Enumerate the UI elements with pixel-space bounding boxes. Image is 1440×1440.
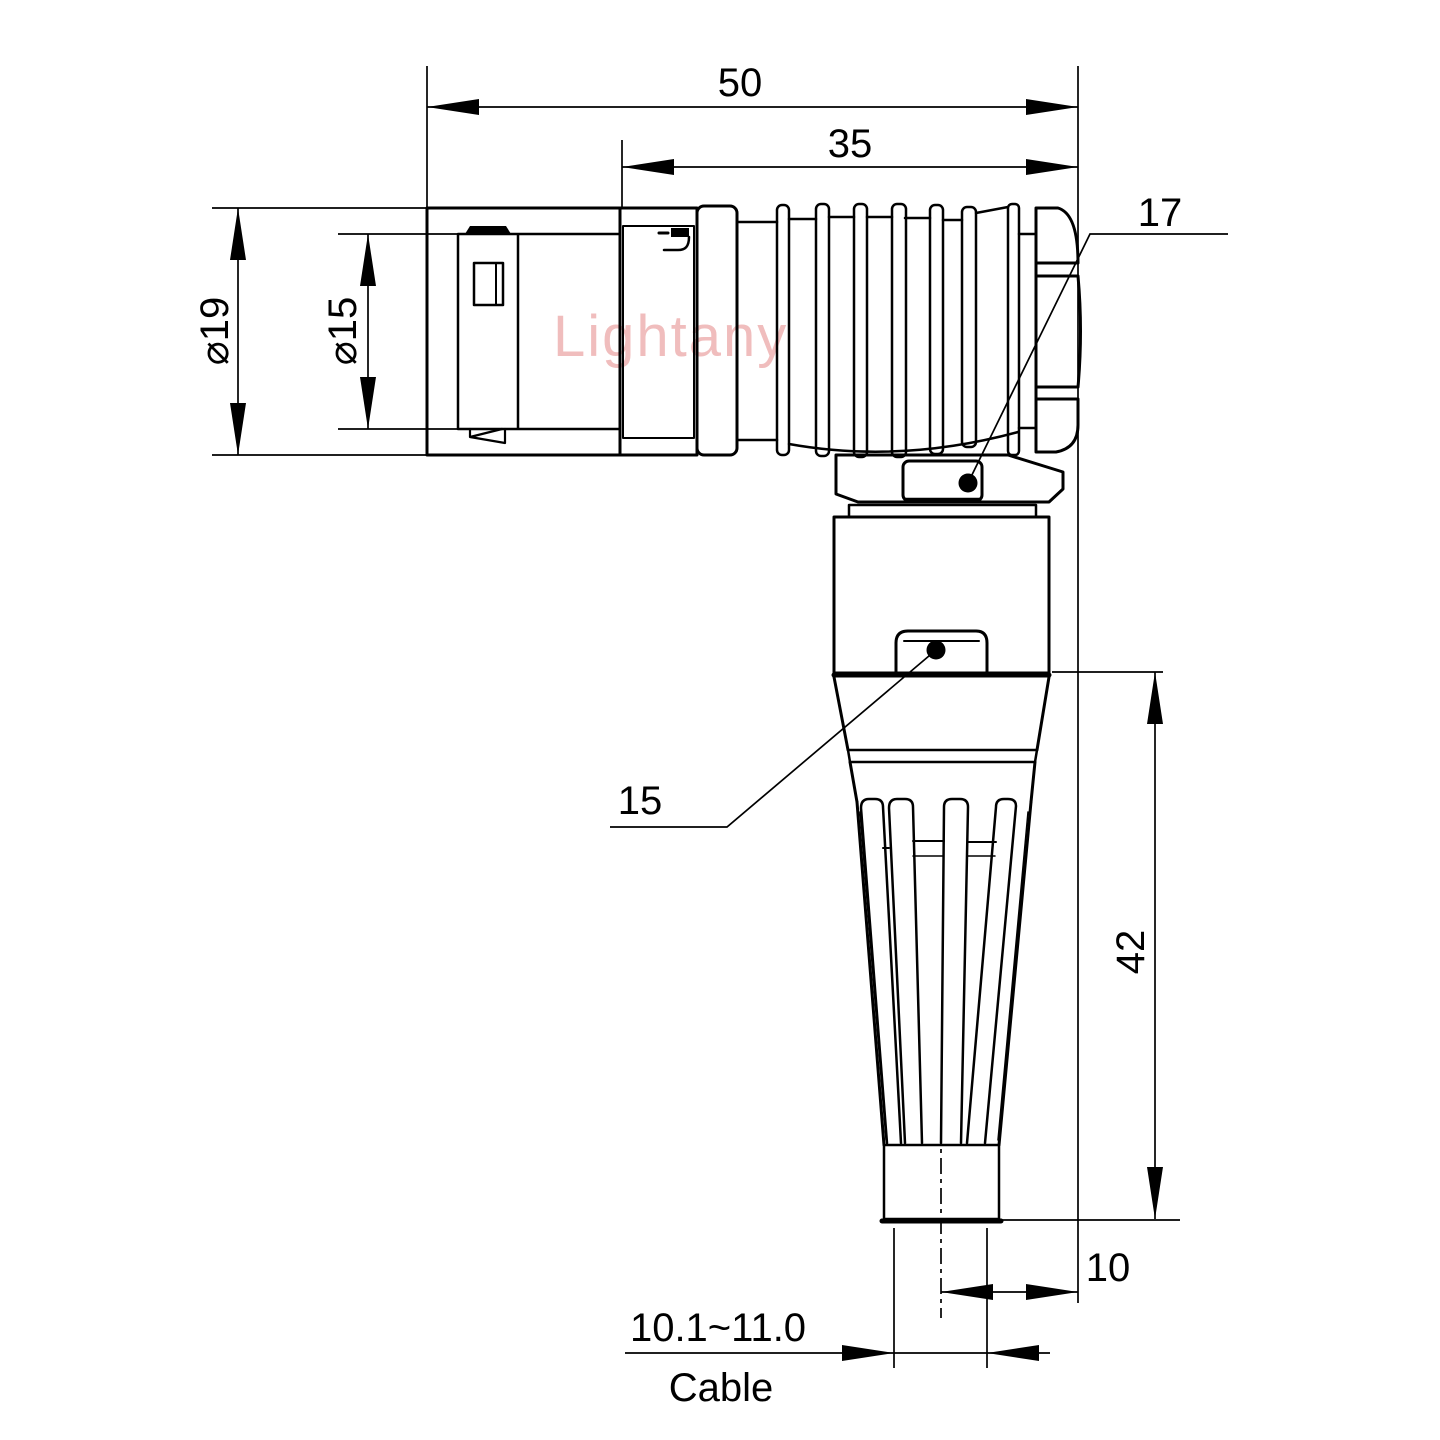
technical-drawing: Lightany	[0, 0, 1440, 1440]
flare-band	[1008, 204, 1019, 455]
arrowhead	[842, 1345, 894, 1361]
connector-part	[427, 204, 1081, 1318]
arrowhead	[622, 159, 674, 175]
bellows-rib	[854, 204, 867, 457]
boot-rib	[967, 799, 1016, 1143]
boot-shoulders	[850, 762, 1035, 802]
dim-value-body-flats: 15	[618, 779, 663, 823]
drawing-page: Lightany	[0, 0, 1440, 1440]
taper-sides	[834, 677, 1049, 750]
dim-value-overall-length: 50	[718, 61, 763, 105]
boot-rib	[941, 799, 968, 1143]
arrowhead	[987, 1345, 1039, 1361]
dim-value-cable-offset: 10	[1086, 1246, 1131, 1290]
dim-value-nut-flats: 17	[1138, 191, 1183, 235]
neck-collar	[849, 505, 1036, 517]
latch-clip-hook	[664, 237, 689, 250]
extension-lines-top	[427, 66, 1078, 1303]
arrowhead	[427, 99, 479, 115]
dim-value-vertical-length: 42	[1109, 930, 1153, 975]
key-tab	[465, 226, 511, 234]
dim-value-plug-diameter: ⌀15	[321, 297, 365, 366]
bellows-rib	[962, 207, 976, 447]
arrowhead	[360, 377, 376, 429]
dim-value-cable-range: 10.1~11.0	[630, 1306, 806, 1350]
boot-rib-ties	[883, 841, 996, 848]
arrowhead	[1147, 1167, 1163, 1219]
front-notch	[470, 429, 505, 443]
bellows-rib	[930, 205, 943, 454]
key-window	[474, 263, 503, 305]
arrowhead	[1026, 1284, 1078, 1300]
bellows-rib	[816, 204, 829, 456]
arrowhead	[230, 208, 246, 260]
latch-clip	[671, 228, 689, 237]
dim-value-outer-diameter: ⌀19	[193, 297, 237, 366]
extension-lines-right	[1001, 672, 1180, 1220]
arrowhead	[360, 234, 376, 286]
neck-lines	[1019, 234, 1036, 428]
arrowhead	[1147, 672, 1163, 724]
dim-label-cable: Cable	[669, 1366, 774, 1410]
dim-value-rear-length: 35	[828, 122, 873, 166]
arrowhead	[941, 1284, 993, 1300]
arrowhead	[230, 403, 246, 455]
watermark-text: Lightany	[553, 304, 788, 369]
bellows-rib	[892, 204, 906, 457]
arrowhead	[1026, 99, 1078, 115]
taper-rings	[848, 750, 1037, 762]
arrowhead	[1026, 159, 1078, 175]
boot-rib	[889, 799, 922, 1143]
